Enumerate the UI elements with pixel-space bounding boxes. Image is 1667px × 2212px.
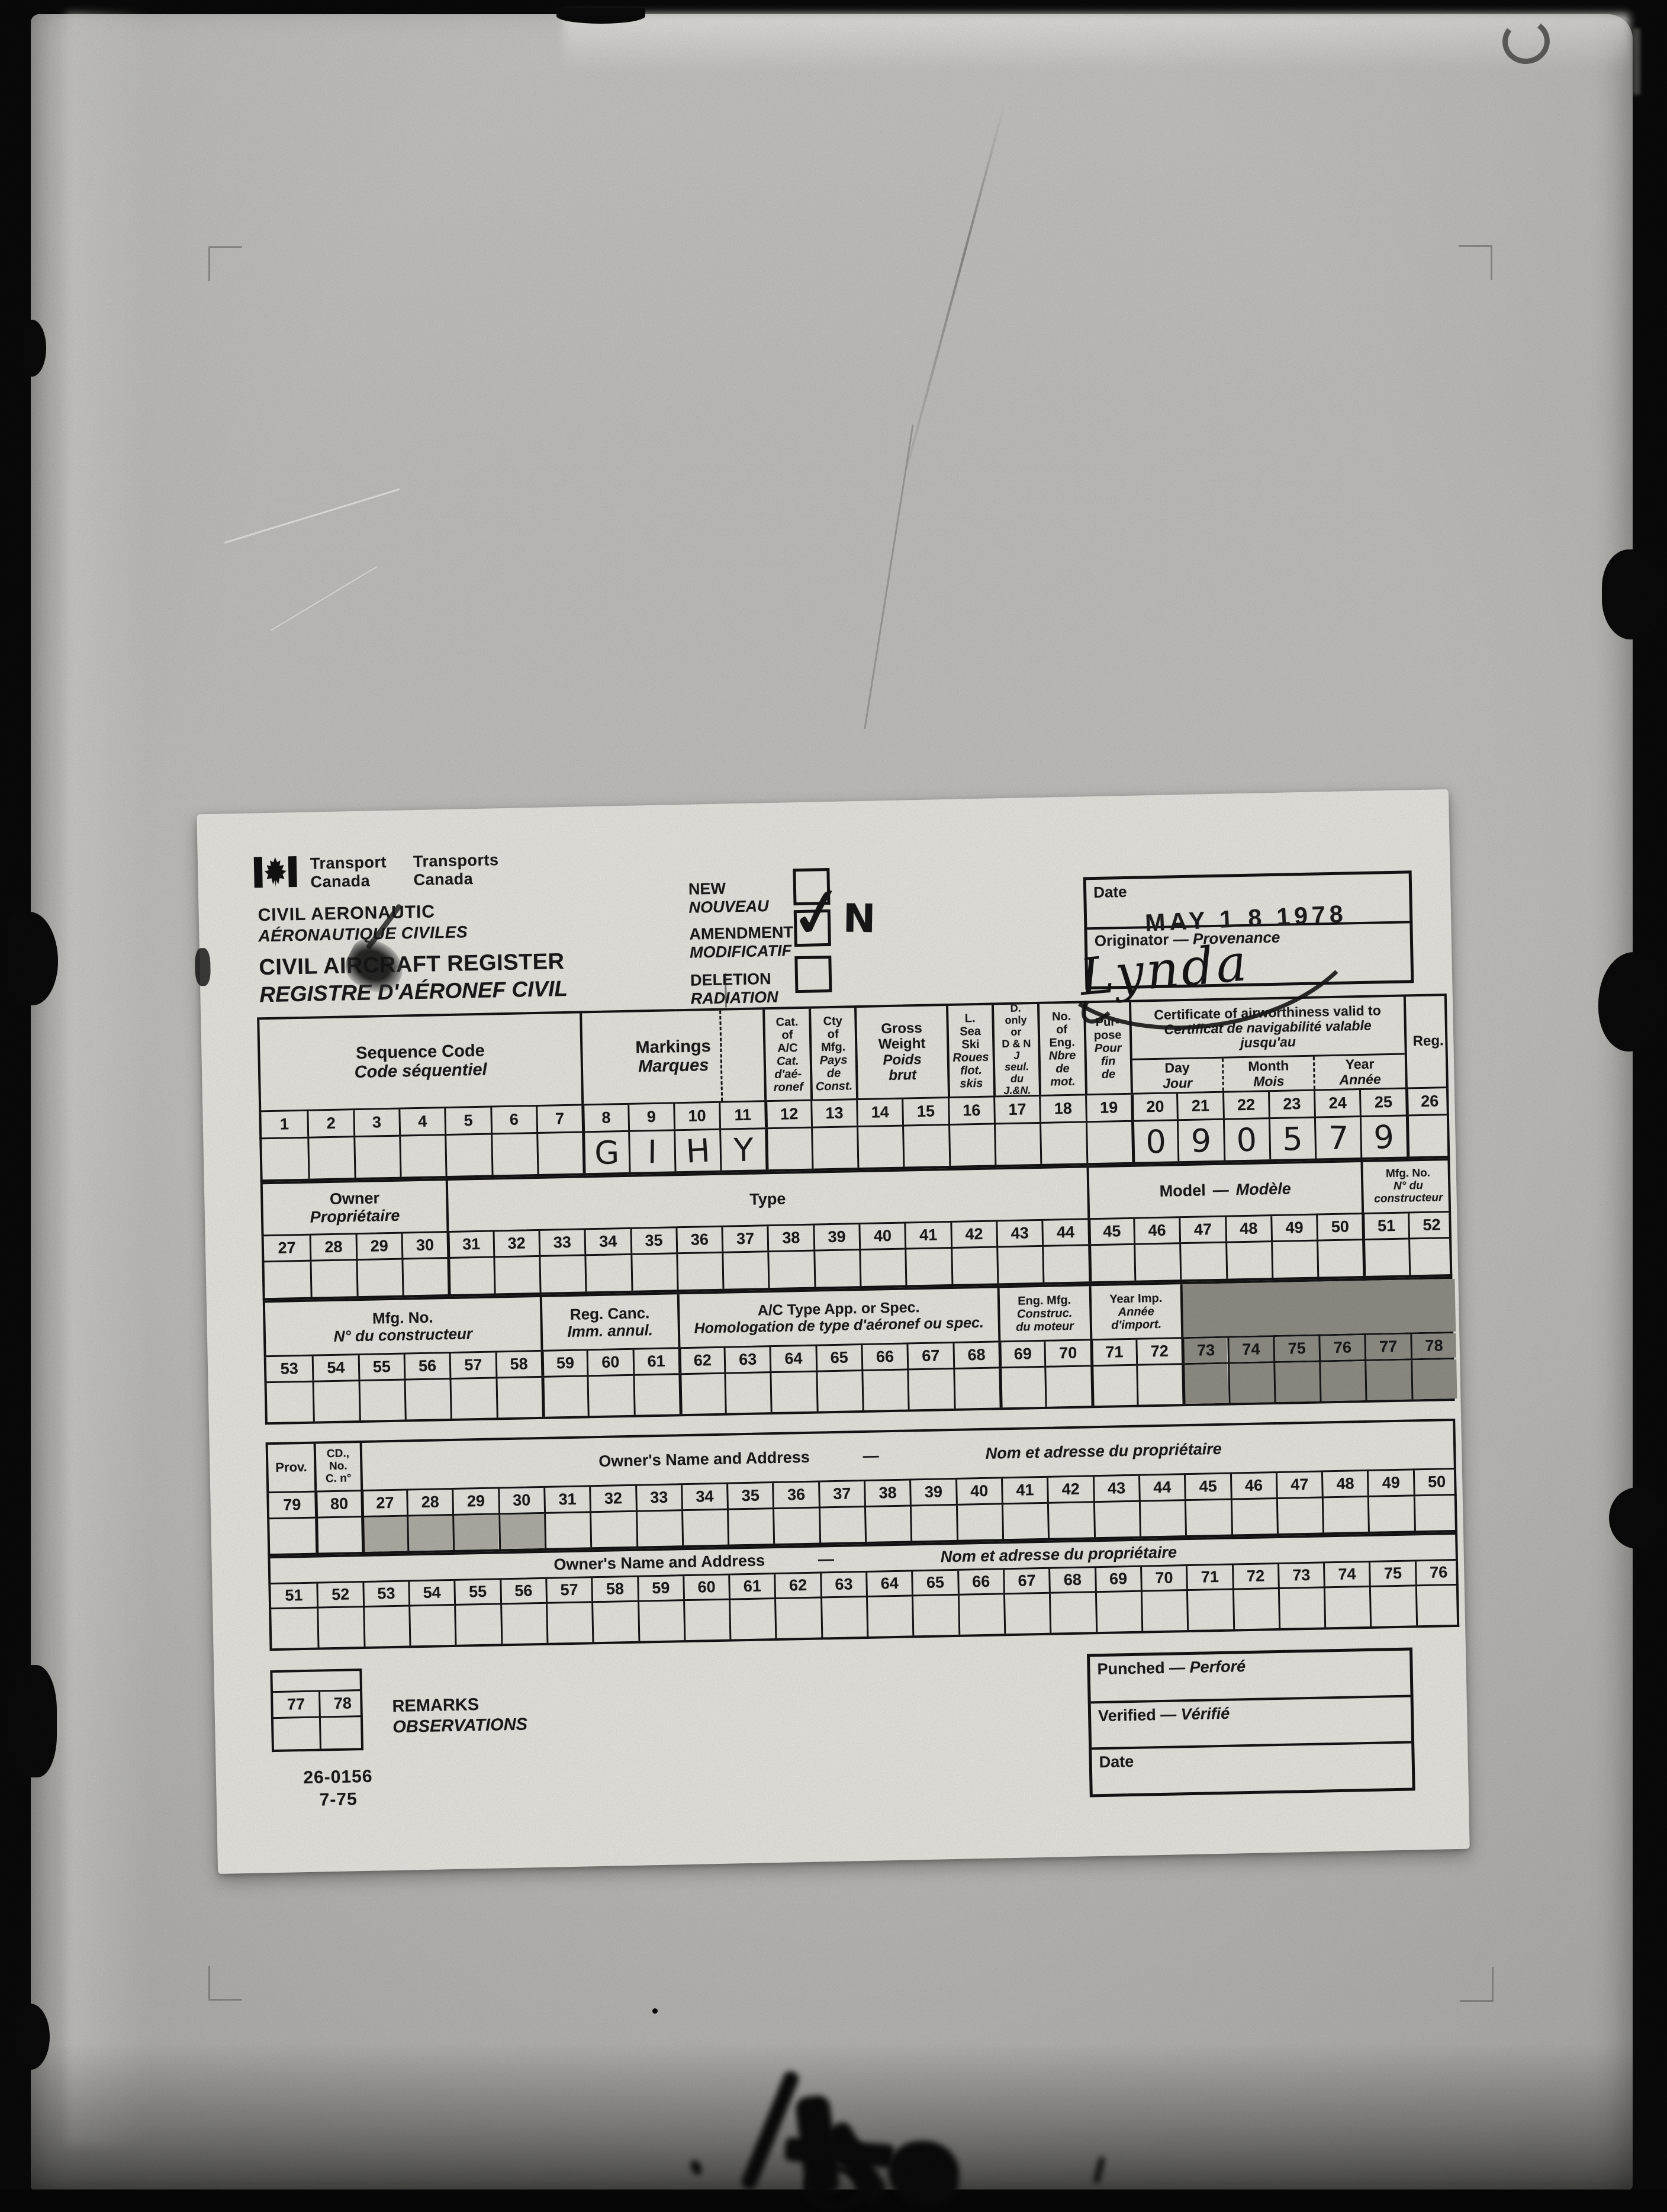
label-fr: Construc. du moteur <box>1016 1306 1074 1333</box>
grid-cell <box>1139 1501 1185 1536</box>
grid-cell <box>407 1516 453 1551</box>
grid-cell <box>681 1510 728 1546</box>
grid-cell <box>630 1254 677 1291</box>
label-en: Date <box>1099 1753 1134 1771</box>
column-number: 40 <box>955 1478 1002 1504</box>
column-number: 44 <box>1042 1220 1088 1245</box>
grid-cell <box>866 1596 913 1637</box>
column-number: 72 <box>1232 1564 1278 1589</box>
grid-cell <box>262 1139 308 1180</box>
form-sheet: TransportCanada TransportsCanada CIVIL A… <box>197 789 1469 1874</box>
column-number: 59 <box>637 1576 683 1600</box>
grid-cell <box>636 1511 682 1547</box>
label-fr: Modèle <box>1235 1180 1291 1199</box>
column-number: 59 <box>540 1351 587 1376</box>
column-number: 50 <box>1413 1470 1459 1495</box>
column-number: 73 <box>1277 1563 1324 1587</box>
column-number: 37 <box>818 1481 864 1507</box>
band-header <box>270 1668 362 1693</box>
grid-cell <box>546 1603 593 1643</box>
column-number-row: 7778 <box>271 1691 362 1719</box>
grid-cell <box>498 1514 545 1549</box>
label-fr: J seul. du J.&N. <box>1003 1050 1031 1096</box>
label-en: Owner's Name and Address <box>553 1552 765 1574</box>
grid-cell <box>541 1377 588 1417</box>
label-fr: Imm. annul. <box>567 1322 653 1340</box>
label-en: Pur- pose <box>1093 1015 1122 1042</box>
grid-cell <box>539 1256 585 1293</box>
grid-cell <box>819 1507 865 1543</box>
column-number: 8 <box>581 1105 627 1131</box>
column-number: 45 <box>1184 1474 1230 1500</box>
grid-cell <box>353 1137 400 1178</box>
checkbox-deletion <box>794 956 832 993</box>
grid-cell <box>1362 1239 1408 1276</box>
column-number: 60 <box>587 1350 633 1375</box>
grid-cell <box>1042 1246 1088 1282</box>
grid-cell <box>267 1382 314 1423</box>
grid-cell <box>491 1134 538 1175</box>
card-row-1: Sequence CodeCode séquentielMarkingsMarq… <box>257 994 1450 1182</box>
grid-cell <box>1049 1593 1096 1633</box>
certificate-valid-to-label: Certificate of airworthiness valid toCer… <box>1131 997 1405 1060</box>
grid-cell <box>1365 1360 1412 1400</box>
label-en: Month <box>1248 1059 1289 1075</box>
label-inline: Model—Modèle <box>1159 1180 1291 1200</box>
label-fr: Cat. d'aé- ronef <box>773 1054 803 1094</box>
label-en: Day <box>1164 1060 1190 1076</box>
column-number: 78 <box>318 1691 365 1716</box>
column-number: 74 <box>1227 1337 1273 1362</box>
grid-cell <box>1413 1496 1459 1531</box>
grid-cell <box>310 1261 356 1297</box>
column-number: 26 <box>1405 1088 1452 1115</box>
column-number: 76 <box>1415 1561 1461 1585</box>
grid-cell <box>683 1600 730 1641</box>
column-number: 75 <box>1369 1561 1415 1586</box>
column-number: 28 <box>406 1490 452 1515</box>
band-section-header: A/C Type App. or Spec.Homologation de ty… <box>677 1288 998 1347</box>
column-number: 16 <box>948 1097 994 1124</box>
column-number: 46 <box>1133 1218 1179 1243</box>
grid-cell <box>633 1375 680 1415</box>
torn-edge-blob <box>556 8 645 24</box>
label-en: Owner's Name and Address <box>598 1448 810 1470</box>
column-number: 60 <box>683 1576 729 1600</box>
column-number: 15 <box>902 1098 948 1125</box>
column-number: 70 <box>1044 1340 1090 1366</box>
column-number: 80 <box>315 1491 361 1517</box>
certificate-date-subheaders: DayJourMonthMoisYearAnnée <box>1132 1055 1405 1093</box>
label-fr: Propriétaire <box>310 1207 400 1226</box>
column-number: 64 <box>865 1571 912 1596</box>
column-number: 76 <box>1318 1335 1365 1361</box>
band-section-header: Eng. Mfg.Construc. du moteur <box>997 1286 1089 1340</box>
band-section-header: No. of Eng.Nbre de mot. <box>1037 1003 1084 1095</box>
handwritten-entry: 7 <box>1328 1119 1349 1157</box>
grid-cell <box>729 1599 775 1639</box>
label-fr: Année <box>1339 1072 1381 1088</box>
grid-cell <box>1324 1587 1370 1628</box>
handwritten-entry: 0 <box>1145 1123 1167 1160</box>
grid-cell <box>315 1517 361 1553</box>
band-section-header: Mfg. No.N° du constructeur <box>265 1297 540 1355</box>
grid-cell <box>811 1127 858 1169</box>
checkbox-label-amendment: AMENDMENTMODIFICATIF <box>689 923 794 962</box>
band-section-header: L. Sea SkiRoues flot. skis <box>946 1005 993 1097</box>
label-dash: — <box>1164 1658 1190 1677</box>
card-row-2: OwnerPropriétaireTypeModel—ModèleMfg. No… <box>260 1158 1453 1300</box>
label-en: Year Imp. <box>1109 1291 1162 1306</box>
grid-cell <box>1179 1243 1225 1280</box>
column-number: 48 <box>1321 1471 1367 1497</box>
column-number: 66 <box>957 1570 1003 1594</box>
column-number: 34 <box>681 1484 727 1510</box>
column-number: 4 <box>398 1108 445 1135</box>
label-en: Owner <box>330 1189 380 1208</box>
handwritten-entry: G <box>594 1134 620 1172</box>
column-number: 73 <box>1182 1338 1228 1364</box>
grid-cell <box>724 1373 771 1413</box>
grid-cell: 9 <box>1177 1120 1224 1162</box>
form-title-en: CIVIL AIRCRAFT REGISTER <box>259 949 565 980</box>
band-section-header: Pur- posePour fin de <box>1083 1002 1130 1094</box>
column-number: 56 <box>500 1579 546 1603</box>
grid-cell <box>820 1597 867 1638</box>
grid-cell <box>1225 1242 1272 1279</box>
grid-cell <box>399 1136 446 1177</box>
column-number: 19 <box>1085 1095 1131 1121</box>
grid-cell <box>1047 1503 1093 1538</box>
column-number: 48 <box>1225 1216 1271 1242</box>
grid-cell <box>813 1250 860 1287</box>
column-number: 23 <box>1268 1091 1314 1118</box>
column-number: 43 <box>1093 1476 1139 1502</box>
grid-cell <box>408 1606 455 1646</box>
column-number: 78 <box>1410 1333 1456 1359</box>
label-fr: Poids brut <box>883 1052 922 1084</box>
label-fr: Nbre de mot. <box>1049 1049 1077 1088</box>
label-fr: Année d'import. <box>1111 1304 1162 1332</box>
label-en: Prov. <box>275 1460 307 1475</box>
column-number: 50 <box>1316 1214 1362 1240</box>
torn-edge-blob <box>1602 549 1666 639</box>
label-en: CD., No. C. n° <box>325 1448 352 1486</box>
grid-cell <box>363 1606 410 1647</box>
column-number: 39 <box>909 1480 955 1505</box>
grid-cell <box>356 1260 402 1297</box>
column-number: 79 <box>269 1493 315 1518</box>
grid-cell <box>678 1374 725 1414</box>
column-number: 64 <box>770 1346 816 1372</box>
grid-cell: 0 <box>1222 1119 1269 1160</box>
grid-cell <box>590 1512 636 1548</box>
column-number: 42 <box>950 1221 996 1247</box>
grid-cell <box>1408 1239 1454 1275</box>
column-number: 67 <box>1003 1569 1049 1593</box>
grid-cell <box>638 1601 684 1641</box>
grid-cell <box>861 1371 908 1411</box>
column-number: 29 <box>355 1234 401 1259</box>
column-number: 65 <box>911 1571 957 1595</box>
grid-cell <box>676 1253 722 1290</box>
column-number: 57 <box>449 1352 495 1378</box>
handwritten-annotation: N <box>842 896 876 942</box>
column-number: 38 <box>767 1226 813 1251</box>
grid-cell <box>454 1605 501 1645</box>
card-row-3: Mfg. No.N° du constructeurReg. Canc.Imm.… <box>263 1277 1455 1425</box>
column-number: 1 <box>261 1111 307 1138</box>
punched-box-row: Date <box>1092 1741 1412 1794</box>
label-en: Verified <box>1098 1706 1156 1725</box>
grid-cell <box>1095 1592 1141 1632</box>
photocopy-background: TransportCanada TransportsCanada CIVIL A… <box>31 14 1633 2191</box>
band-section-header: CD., No. C. n° <box>314 1443 361 1491</box>
column-number: 51 <box>271 1584 317 1608</box>
column-number: 17 <box>993 1097 1040 1123</box>
band-section-header: Cat. of A/CCat. d'aé- ronef <box>762 1009 810 1101</box>
column-number: 27 <box>361 1491 407 1516</box>
column-number: 72 <box>1135 1339 1182 1364</box>
column-number: 34 <box>584 1229 630 1255</box>
grid-cell <box>1093 1502 1139 1538</box>
grid-cell <box>445 1135 491 1176</box>
column-number: 10 <box>673 1103 719 1130</box>
label-en: Model <box>1159 1182 1206 1200</box>
grid-cell <box>859 1250 905 1287</box>
label-dash: — <box>1156 1705 1181 1724</box>
label-dash: — <box>863 1447 879 1465</box>
grid-cell <box>500 1604 547 1644</box>
grid-cell <box>1228 1363 1275 1403</box>
column-number: 25 <box>1359 1089 1405 1116</box>
label-fr: Certificat de navigabilité valable jusqu… <box>1164 1018 1372 1052</box>
band-section-header: D. only or D & NJ seul. du J.&N. <box>992 1004 1039 1096</box>
column-number: 24 <box>1314 1090 1360 1117</box>
label-en: Punched <box>1097 1659 1165 1678</box>
label-en: Markings <box>635 1037 711 1057</box>
ink-blot <box>804 2165 865 2211</box>
data-row <box>271 1717 363 1752</box>
grid-cell <box>313 1381 359 1422</box>
column-number: 29 <box>452 1488 498 1514</box>
grid-cell <box>1186 1590 1233 1631</box>
column-number: 51 <box>1362 1213 1408 1239</box>
grid-cell <box>1044 1367 1091 1407</box>
grid-cell <box>816 1371 863 1412</box>
grid-cell <box>269 1519 316 1554</box>
grid-cell <box>774 1599 821 1639</box>
wordmark-transports-canada: TransportsCanada <box>413 851 500 889</box>
grid-cell <box>770 1372 817 1413</box>
grid-cell: Y <box>719 1129 766 1171</box>
column-number: 75 <box>1273 1336 1319 1362</box>
column-number: 42 <box>1047 1477 1093 1502</box>
column-number: 56 <box>404 1353 450 1379</box>
label-fr: Roues flot. skis <box>952 1050 989 1090</box>
grid-cell: 7 <box>1314 1117 1361 1159</box>
label-en: Type <box>749 1190 786 1208</box>
column-number: 39 <box>813 1224 859 1250</box>
handwritten-entry: 9 <box>1190 1122 1211 1160</box>
grid-cell <box>907 1369 954 1410</box>
label-en: Eng. Mfg. <box>1018 1293 1071 1307</box>
grid-cell <box>994 1124 1041 1165</box>
column-number: 69 <box>1095 1567 1141 1592</box>
grid-cell <box>1040 1123 1086 1164</box>
grid-cell <box>1185 1500 1231 1536</box>
column-number: 54 <box>408 1581 454 1605</box>
grid-cell <box>1276 1498 1322 1533</box>
torn-edge-blob <box>1598 952 1667 1052</box>
column-number: 67 <box>907 1343 953 1369</box>
handwritten-entry: H <box>685 1131 711 1170</box>
column-number: 43 <box>996 1221 1042 1246</box>
grid-cell <box>1002 1504 1048 1539</box>
column-number: 45 <box>1087 1219 1134 1245</box>
grid-cell: H <box>674 1130 720 1172</box>
card-row-6: 7778 <box>270 1668 363 1752</box>
column-number: 20 <box>1131 1094 1177 1120</box>
grid-cell <box>587 1376 634 1416</box>
grid-cell <box>857 1127 903 1168</box>
label-fr: Vérifié <box>1180 1704 1230 1723</box>
column-number: 11 <box>719 1102 765 1128</box>
label-fr: Pour fin de <box>1095 1041 1122 1081</box>
column-number: 3 <box>353 1110 399 1136</box>
column-number: 52 <box>317 1583 363 1607</box>
grid-cell <box>768 1252 814 1288</box>
column-number: 6 <box>490 1107 536 1133</box>
label-fr: Jour <box>1163 1075 1192 1091</box>
column-number: 49 <box>1367 1470 1413 1496</box>
grid-cell <box>271 1609 318 1649</box>
grid-cell <box>951 1248 997 1284</box>
column-number: 30 <box>498 1488 544 1513</box>
torn-edge-blob <box>18 320 46 377</box>
grid-cell <box>1088 1245 1134 1282</box>
column-number: 32 <box>493 1231 539 1256</box>
column-number: 55 <box>358 1355 404 1380</box>
grid-cell: 9 <box>1360 1117 1407 1158</box>
column-number: 49 <box>1270 1216 1317 1241</box>
label-en: Mfg. No. <box>1386 1168 1430 1181</box>
handwritten-entry: I <box>647 1133 657 1170</box>
label-en: Gross Weight <box>878 1021 926 1053</box>
grid-cell <box>319 1717 365 1749</box>
column-number: 70 <box>1140 1566 1186 1590</box>
grid-cell <box>358 1381 405 1421</box>
date-part-header: MonthMois <box>1222 1057 1314 1091</box>
grid-cell <box>536 1133 583 1174</box>
column-number: 77 <box>1365 1334 1411 1359</box>
grid-cell <box>996 1247 1042 1284</box>
label-fr: N° du constructeur <box>1374 1179 1443 1205</box>
column-number: 41 <box>905 1223 951 1248</box>
column-number: 69 <box>998 1342 1044 1367</box>
label-fr: Nom et adresse du propriétaire <box>985 1441 1222 1463</box>
column-number: 13 <box>810 1100 857 1127</box>
band-section-header: OwnerPropriétaire <box>263 1181 447 1234</box>
label-en: Mfg. No. <box>372 1308 433 1327</box>
band-section-header: Gross WeightPoids brut <box>854 1006 948 1098</box>
grid-cell <box>1086 1122 1132 1163</box>
column-number: 62 <box>774 1574 820 1598</box>
band-section-header: Certificate of airworthiness valid toCer… <box>1129 997 1405 1093</box>
grid-cell <box>317 1607 364 1648</box>
label-fr: N° du constructeur <box>333 1325 472 1345</box>
column-number: 68 <box>952 1342 999 1368</box>
label-en: Cat. of A/C <box>775 1015 799 1055</box>
label-fr: Homologation de type d'aéronef ou spec. <box>694 1314 984 1336</box>
column-number: 35 <box>630 1228 676 1253</box>
column-number: 38 <box>864 1480 910 1506</box>
grid-cell <box>361 1517 407 1552</box>
checkbox-label-deletion: DELETIONRADIATION <box>690 970 778 1008</box>
column-number: 35 <box>726 1483 773 1509</box>
column-number: 71 <box>1090 1340 1136 1365</box>
grid-cell <box>956 1504 1002 1540</box>
band-section-header: Cty of Mfg.Pays de Const. <box>809 1008 856 1099</box>
band-section-header: Reg. <box>1404 996 1451 1088</box>
column-number: 47 <box>1276 1472 1322 1497</box>
grid-cell <box>902 1126 949 1167</box>
grid-cell: 5 <box>1269 1118 1315 1160</box>
torn-edge-blob <box>5 1665 57 1777</box>
grid-cell <box>1415 1586 1462 1626</box>
label-en: Year <box>1346 1057 1375 1072</box>
punched-box-row: Verified — Vérifié <box>1091 1695 1411 1747</box>
column-number: 33 <box>635 1485 681 1510</box>
handwritten-check-mark: ✓ <box>782 867 853 957</box>
grid-cell <box>958 1594 1005 1635</box>
grid-cell <box>1367 1496 1414 1532</box>
grid-cell <box>585 1255 631 1292</box>
label-fr: Nom et adresse du propriétaire <box>941 1544 1177 1566</box>
grid-cell <box>452 1515 498 1550</box>
column-number: 61 <box>632 1349 678 1374</box>
wordmark-transport-canada: TransportCanada <box>310 853 387 892</box>
ink-blot <box>652 2008 658 2014</box>
column-number: 63 <box>724 1347 770 1372</box>
remarks-label: REMARKSOBSERVATIONS <box>392 1694 527 1738</box>
column-number: 65 <box>815 1345 861 1371</box>
grid-cell <box>1273 1362 1320 1403</box>
label-fr: Marques <box>638 1056 709 1076</box>
grid-cell <box>905 1249 951 1285</box>
column-number: 54 <box>312 1355 358 1381</box>
column-number: 36 <box>773 1483 819 1508</box>
column-number: 53 <box>266 1356 313 1382</box>
grid-cell <box>1090 1366 1137 1406</box>
column-number: 18 <box>1039 1095 1085 1122</box>
band-section-header: Prov. <box>268 1444 315 1492</box>
grid-cell <box>544 1513 590 1548</box>
label-en: Reg. Canc. <box>570 1304 650 1323</box>
label-fr: Code séquentiel <box>354 1060 487 1082</box>
dashed-column-divider <box>719 1011 723 1101</box>
column-number: 33 <box>538 1230 584 1255</box>
smudge-mark <box>1633 28 1640 95</box>
grid-cell: I <box>628 1131 675 1172</box>
grid-cell <box>773 1509 819 1544</box>
punched-box-row: Punched — Perforé <box>1090 1651 1410 1701</box>
grid-cell <box>1182 1364 1228 1404</box>
grid-cell <box>1317 1240 1363 1277</box>
grid-cell <box>1369 1586 1416 1626</box>
column-number: 9 <box>627 1104 674 1130</box>
grid-cell: G <box>582 1132 629 1173</box>
